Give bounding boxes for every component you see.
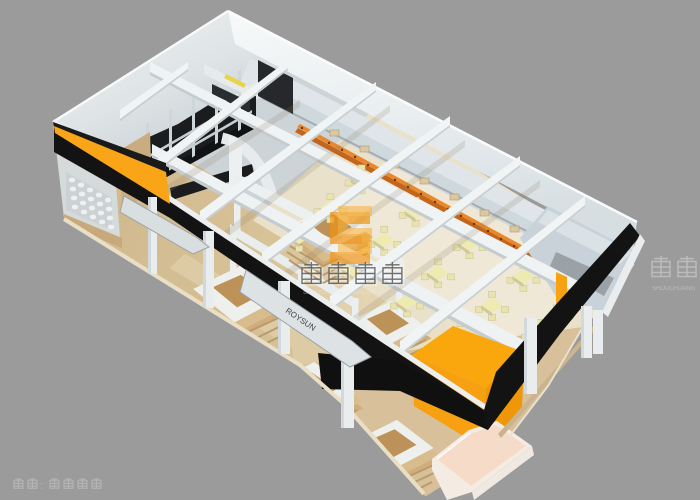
svg-text:SHOUCHUANGZHANLAN: SHOUCHUANGZHANLAN: [303, 290, 374, 296]
svg-text::: :: [40, 480, 43, 492]
svg-text:SHOUCHUANG: SHOUCHUANG: [652, 286, 696, 292]
